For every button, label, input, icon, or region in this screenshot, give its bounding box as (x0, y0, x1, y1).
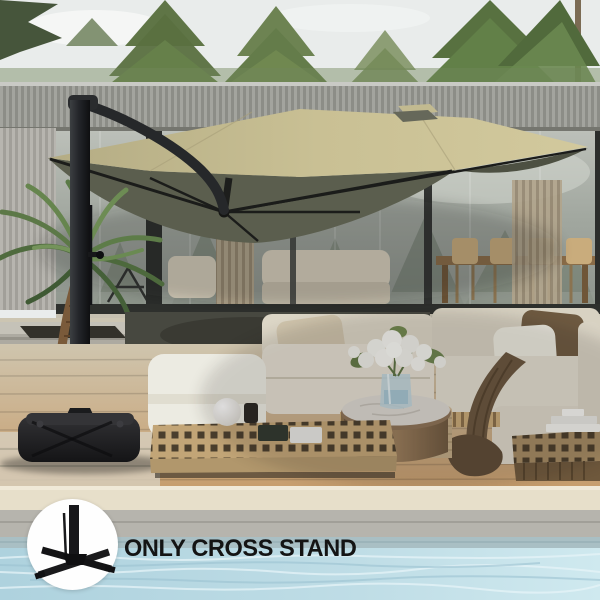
cross-stand-badge (27, 499, 118, 590)
badge-caption: ONLY CROSS STAND (124, 536, 438, 564)
crank-handle (96, 251, 104, 259)
mullion (595, 131, 600, 319)
product-photo: ONLY CROSS STAND (0, 0, 600, 600)
cross-stand-icon (27, 499, 118, 590)
